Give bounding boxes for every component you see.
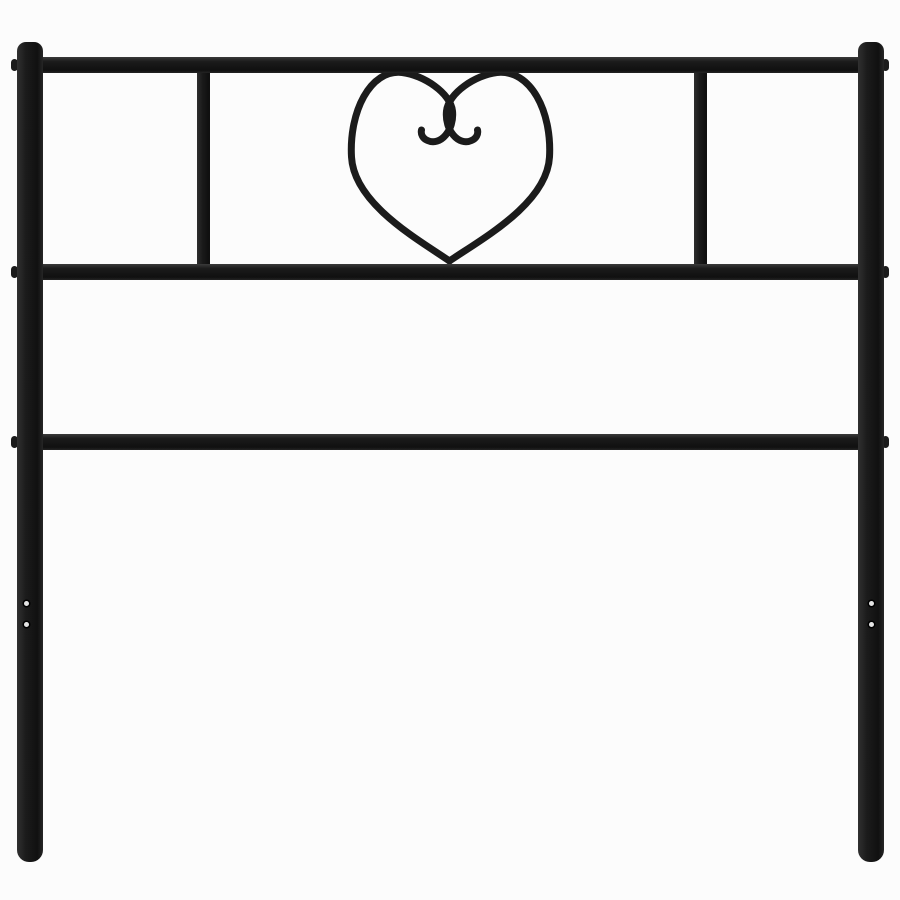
screw-hole [24,622,29,627]
headboard-product-photo [0,0,900,900]
left-post [17,42,43,862]
screw-hole [24,601,29,606]
middle-rail [43,264,858,280]
screw-hole [869,622,874,627]
heart-left-curve [351,72,452,261]
top-rail [43,57,858,73]
lower-rail [43,434,858,450]
heart-right-curve [446,72,549,261]
heart-scroll-ornament-icon [0,0,900,900]
screw-hole [869,601,874,606]
right-post [858,42,884,862]
